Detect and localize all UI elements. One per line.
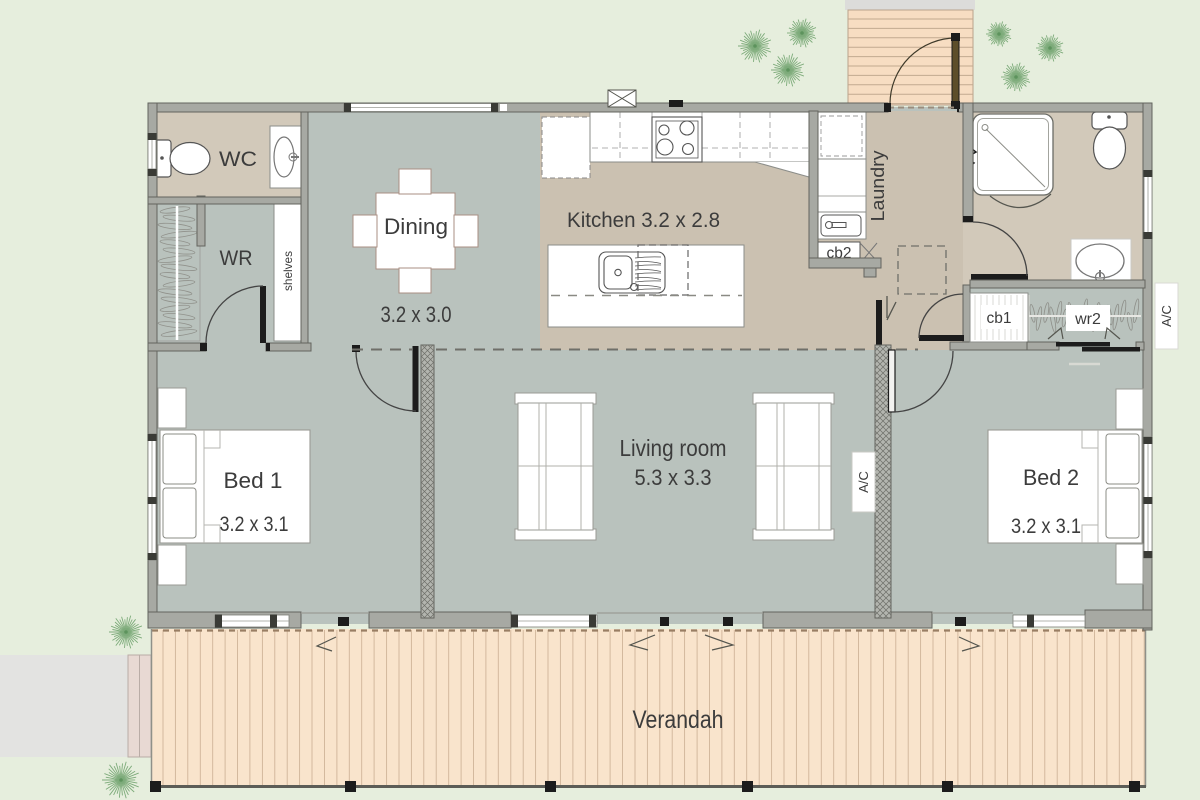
svg-text:Bed 2: Bed 2 [1023,465,1079,490]
svg-text:3.2 x 3.1: 3.2 x 3.1 [1011,515,1081,538]
svg-text:Laundry: Laundry [867,150,888,222]
svg-text:cb1: cb1 [987,310,1012,327]
svg-text:WR: WR [220,247,253,270]
svg-text:3.2 x 3.1: 3.2 x 3.1 [220,513,289,536]
svg-text:shelves: shelves [281,251,295,291]
svg-text:wr2: wr2 [1074,311,1101,328]
svg-text:Kitchen 3.2 x 2.8: Kitchen 3.2 x 2.8 [567,208,720,232]
svg-text:Verandah: Verandah [633,706,724,734]
svg-text:5.3 x 3.3: 5.3 x 3.3 [635,465,712,490]
svg-text:3.2 x 3.0: 3.2 x 3.0 [381,302,452,327]
svg-text:A/C: A/C [1159,305,1174,327]
svg-text:Bed 1: Bed 1 [224,468,283,493]
svg-text:Living room: Living room [620,435,727,461]
svg-text:WC: WC [219,148,257,171]
svg-text:Dining: Dining [384,214,448,239]
svg-text:A/C: A/C [856,471,871,493]
